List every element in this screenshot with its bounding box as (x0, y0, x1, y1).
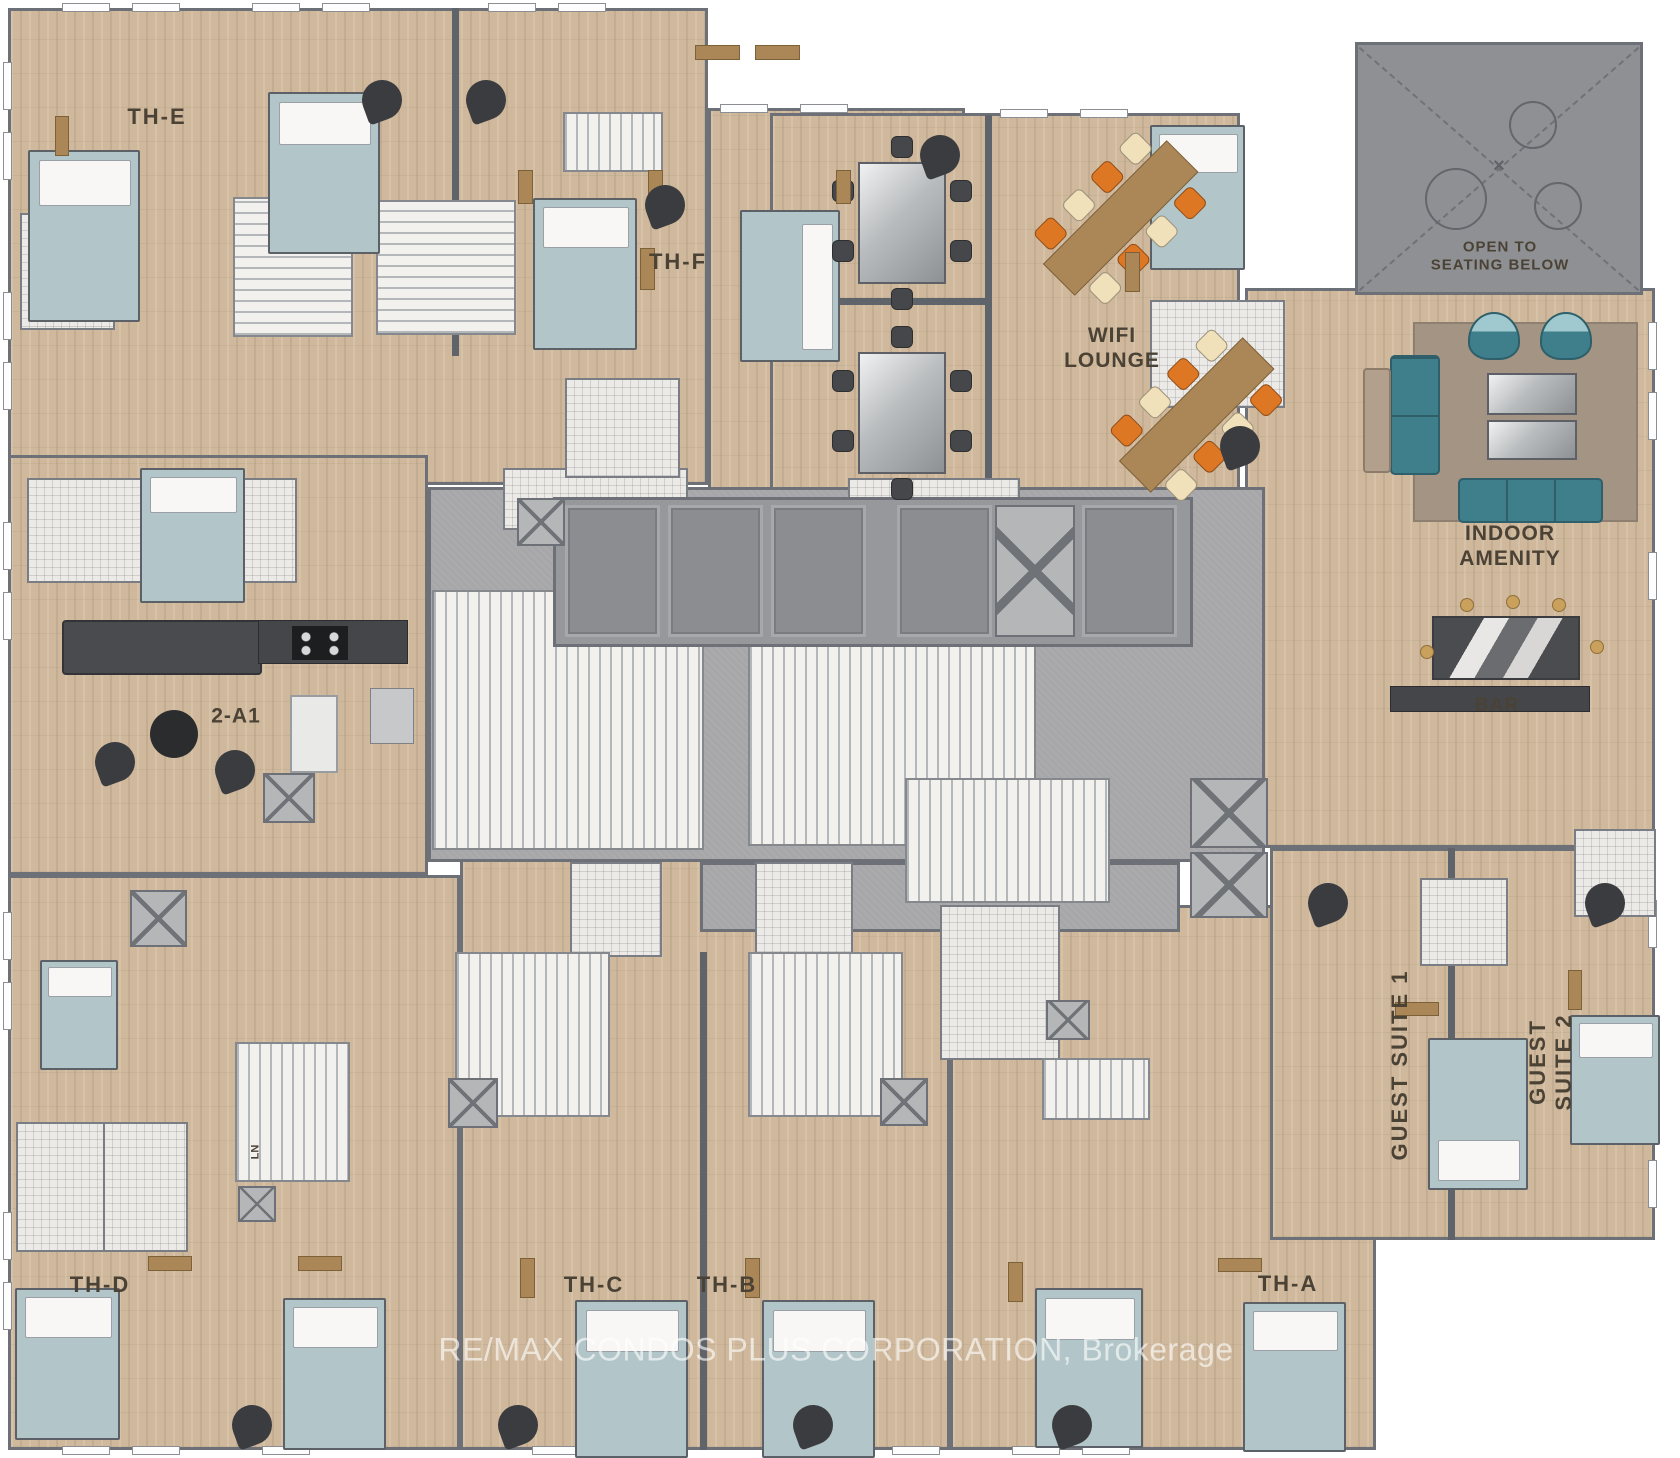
chair (950, 240, 972, 262)
window (3, 592, 12, 640)
dresser (1008, 1262, 1023, 1302)
bed (15, 1288, 120, 1440)
chair (950, 180, 972, 202)
room-label: TH-F (649, 249, 707, 275)
elevator-car (897, 505, 992, 637)
dining-table (150, 710, 198, 758)
window (3, 982, 12, 1030)
staircase (1042, 1058, 1150, 1120)
staircase (563, 112, 663, 172)
room-label: TH-B (697, 1272, 758, 1298)
window (892, 1446, 940, 1455)
window (532, 1446, 580, 1455)
conference-table (858, 162, 946, 284)
bed-pillow (1579, 1023, 1653, 1058)
bar-stool (1552, 598, 1566, 612)
bathroom-tile (565, 378, 680, 478)
watermark: RE/MAX CONDOS PLUS CORPORATION, Brokerag… (438, 1332, 1233, 1369)
bed-pillow (802, 224, 833, 350)
dresser (518, 170, 533, 204)
room-label: INDOOR AMENITY (1425, 522, 1595, 572)
sofa (1458, 478, 1603, 523)
dining-table (290, 695, 338, 773)
shaft-x-icon (448, 1078, 498, 1128)
window (3, 62, 12, 110)
bed (1570, 1015, 1660, 1145)
window (62, 1446, 110, 1455)
window (1000, 109, 1048, 118)
bed-pillow (279, 102, 372, 145)
window (132, 3, 180, 12)
elevator-shaft-x (995, 505, 1075, 637)
window (62, 3, 110, 12)
elevator-car (565, 505, 660, 637)
window (800, 104, 848, 113)
bar-stool (1506, 595, 1520, 609)
window (3, 912, 12, 960)
coffee-table (1487, 373, 1577, 415)
open-below-circle (1425, 168, 1487, 230)
room-label: TH-E (127, 104, 186, 130)
chair (891, 288, 913, 310)
open-below-circle (1534, 182, 1582, 230)
room-label: LN (250, 1145, 263, 1160)
window (3, 522, 12, 570)
room-label: TH-C (564, 1272, 625, 1298)
interior-wall (985, 115, 992, 505)
bed-pillow (25, 1297, 112, 1337)
dresser (755, 45, 800, 60)
window (3, 1212, 12, 1260)
room-label: BAR (1475, 695, 1519, 717)
chair (950, 430, 972, 452)
shaft-x-icon (263, 773, 315, 823)
open-below-cross-icon: × (1493, 155, 1505, 179)
window (132, 1446, 180, 1455)
bed (28, 150, 140, 322)
dresser (298, 1256, 342, 1271)
window (1648, 392, 1657, 440)
window (3, 132, 12, 180)
elevator-car (1082, 505, 1177, 637)
bed-pillow (150, 477, 237, 513)
elevator-car (668, 505, 763, 637)
bed (268, 92, 380, 254)
open-below-circle (1509, 101, 1557, 149)
fridge (370, 688, 414, 744)
sofa (1390, 355, 1440, 475)
dresser (520, 1258, 535, 1298)
interior-wall (700, 952, 707, 1450)
dresser (836, 170, 851, 204)
window (3, 292, 12, 340)
shaft-x-icon (517, 498, 565, 546)
room-label: GUEST SUITE 2 (1525, 998, 1577, 1127)
bathroom-tile (16, 1122, 106, 1252)
window (488, 3, 536, 12)
bar-island (1432, 616, 1580, 680)
shaft-x-icon (880, 1078, 928, 1126)
bed (1243, 1302, 1346, 1452)
room-label: GUEST SUITE 1 (1387, 969, 1413, 1160)
floor-plan: ×TH-ETH-FWIFI LOUNGEOPEN TO SEATING BELO… (0, 0, 1680, 1458)
shaft-x-icon (238, 1186, 276, 1222)
coffee-table (1487, 420, 1577, 460)
chair (891, 136, 913, 158)
window (3, 362, 12, 410)
chair (950, 370, 972, 392)
staircase (376, 200, 516, 335)
shaft-x-icon (1046, 1000, 1090, 1040)
shaft-x-icon (130, 890, 187, 947)
bed (740, 210, 840, 362)
bathroom-tile (103, 1122, 188, 1252)
window (1648, 1160, 1657, 1208)
room-label: TH-D (70, 1272, 131, 1298)
shaft-x-icon (1190, 778, 1268, 848)
window (1648, 322, 1657, 370)
room-label: TH-A (1258, 1271, 1319, 1297)
bathroom-tile (570, 862, 662, 957)
bed (40, 960, 118, 1070)
chair (891, 326, 913, 348)
bed-pillow (1253, 1311, 1338, 1351)
bed (283, 1298, 386, 1450)
chair (832, 430, 854, 452)
bed (140, 468, 245, 603)
bed (1428, 1038, 1528, 1190)
conference-table (858, 352, 946, 474)
sofa (62, 620, 262, 675)
window (1648, 552, 1657, 600)
window (322, 3, 370, 12)
room-label: OPEN TO SEATING BELOW (1431, 238, 1570, 273)
shaft-x-icon (1190, 852, 1268, 918)
dresser (1125, 252, 1140, 292)
bed-pillow (1438, 1140, 1521, 1180)
staircase (905, 778, 1110, 903)
bathroom-tile (940, 905, 1060, 1060)
dresser (55, 116, 69, 156)
room-label: 2-A1 (211, 705, 261, 730)
bed-pillow (48, 967, 112, 997)
window (558, 3, 606, 12)
bed-pillow (543, 207, 629, 247)
bathroom-tile (1420, 878, 1508, 966)
window (1080, 109, 1128, 118)
window (252, 3, 300, 12)
bed (575, 1300, 688, 1458)
staircase (235, 1042, 350, 1182)
chaise (1363, 368, 1391, 473)
dresser (1218, 1258, 1262, 1272)
stove (292, 626, 348, 660)
bar-stool (1590, 640, 1604, 654)
window (3, 1282, 12, 1330)
bar-stool (1420, 645, 1434, 659)
bar-stool (1460, 598, 1474, 612)
dresser (695, 45, 740, 60)
room-label: WIFI LOUNGE (1064, 324, 1160, 374)
window (720, 104, 768, 113)
elevator-car (771, 505, 866, 637)
bed (533, 198, 637, 350)
chair (832, 370, 854, 392)
chair (832, 240, 854, 262)
bed-pillow (39, 160, 132, 206)
bathroom-tile (755, 862, 853, 957)
chair (891, 478, 913, 500)
dresser (148, 1256, 192, 1271)
bed-pillow (293, 1307, 378, 1347)
